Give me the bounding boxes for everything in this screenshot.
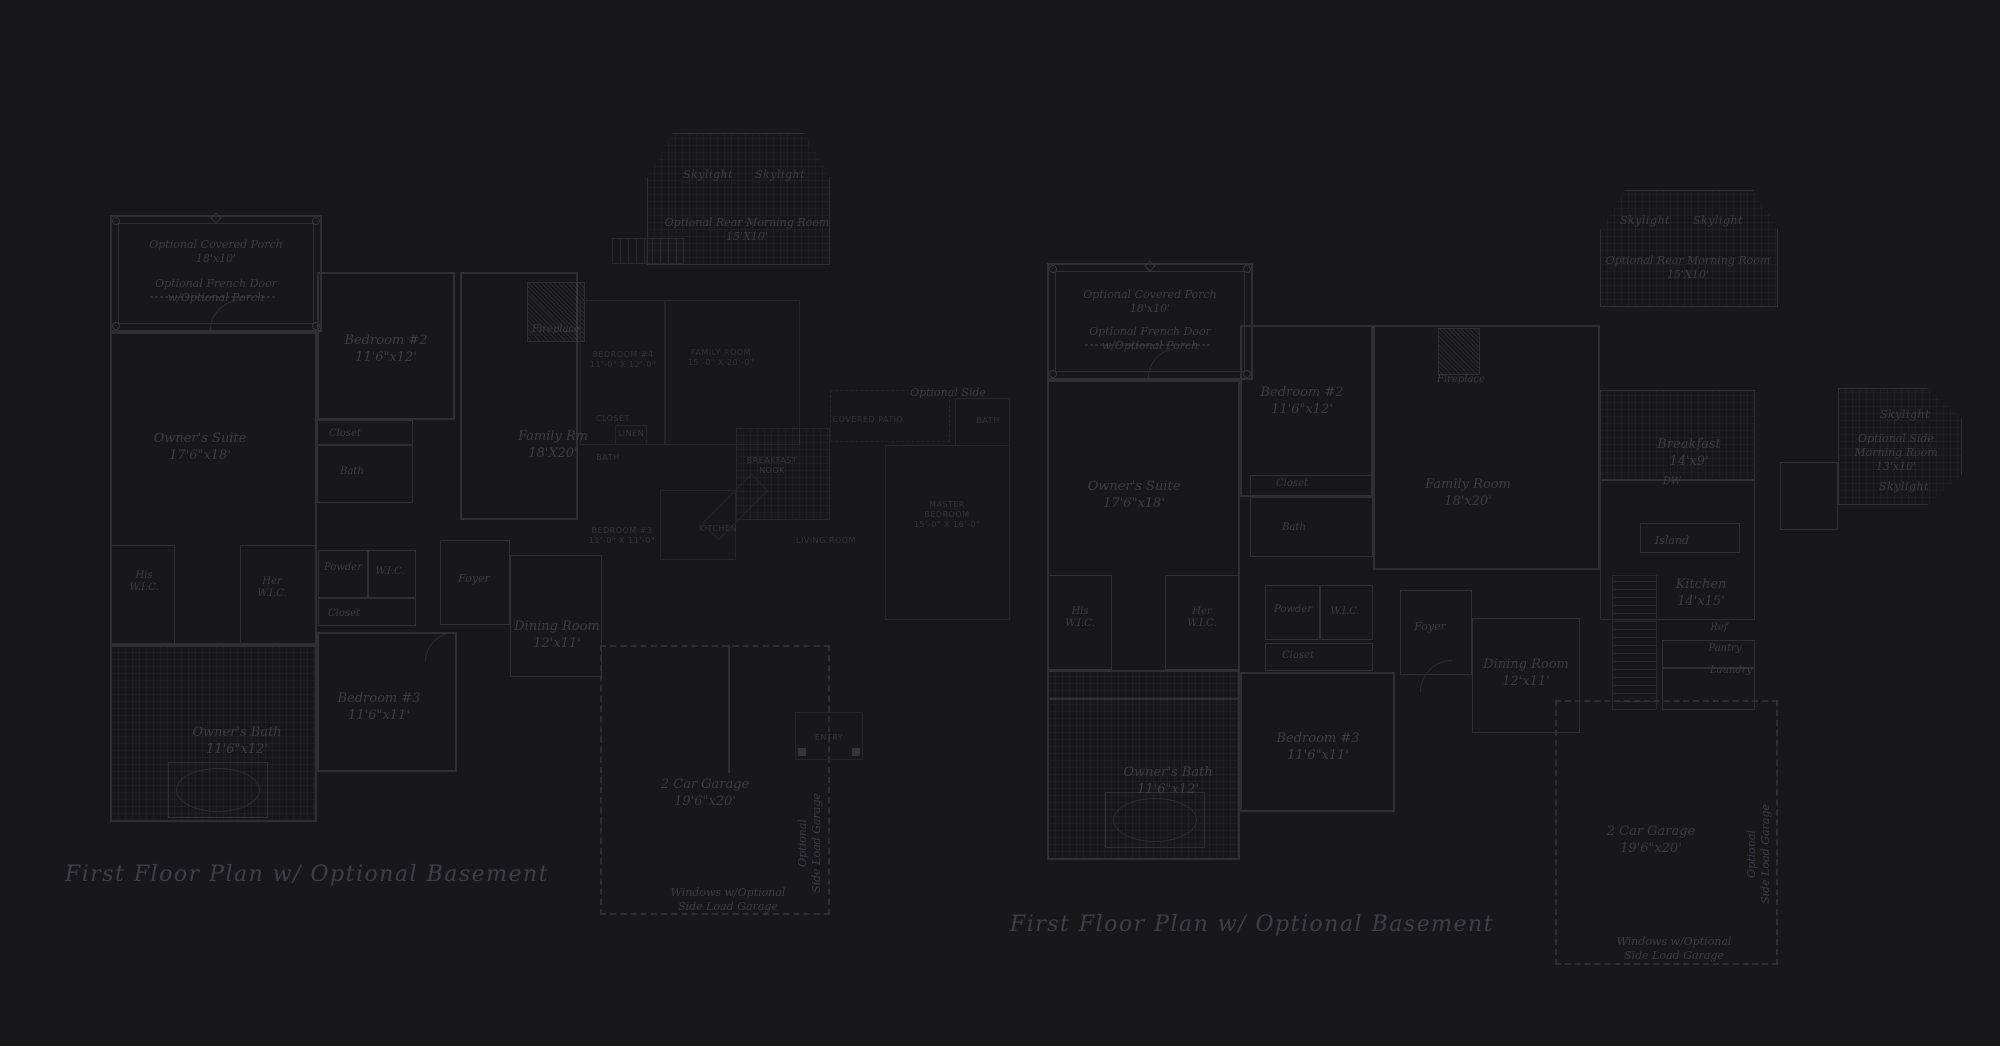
- right-plan-optional-french-door-label-line: w/Optional Porch: [1089, 339, 1211, 353]
- entry-post: [798, 748, 806, 756]
- right-plan-skylight-label-1: Skylight: [1620, 214, 1670, 227]
- floor-plan-canvas: Optional Covered Porch18'x10'Optional Fr…: [0, 0, 2000, 1046]
- morning-room-connector: [1780, 462, 1838, 530]
- left-plan-caps-bath-label-line: BATH: [596, 453, 619, 463]
- left-plan-bedroom2-label: Bedroom #211'6"x12': [344, 332, 427, 366]
- left-plan-caps-entry-label-line: ENTRY: [815, 733, 843, 743]
- left-plan-her-wic-label-line: W.I.C.: [257, 588, 286, 600]
- left-plan-bedroom2-label-line: Bedroom #2: [344, 332, 427, 349]
- left-plan-caps-bedroom3-label-line: 11'-0" X 11'-0": [589, 536, 655, 546]
- left-plan-his-wic-label-line: His: [129, 570, 158, 582]
- tub-basin: [1113, 798, 1197, 842]
- right-plan-owners-suite-label-line: Owner's Suite: [1088, 478, 1181, 495]
- right-plan-ref-label-line: Ref: [1710, 622, 1727, 634]
- left-plan-garage-label: 2 Car Garage19'6"x20': [661, 776, 750, 810]
- porch-post: [1243, 265, 1251, 273]
- left-plan-caps-master-bedroom-label: MASTERBEDROOM15'-0" X 16'-0": [914, 500, 980, 530]
- right-plan-optional-covered-porch-label-line: Optional Covered Porch: [1083, 288, 1216, 302]
- dining-room: [510, 555, 602, 677]
- right-plan-bedroom2-label-line: Bedroom #2: [1260, 384, 1343, 401]
- right-plan-bedroom2-label: Bedroom #211'6"x12': [1260, 384, 1343, 418]
- left-plan-family-rm-label: Family Rm18'X20': [518, 428, 588, 462]
- left-plan-owners-suite-label: Owner's Suite17'6"x18': [154, 430, 247, 464]
- right-plan-side-load-garage-vertical-label-line: Optional: [1745, 804, 1759, 904]
- right-plan-closet2-label: Closet: [1282, 650, 1314, 662]
- left-plan-caps-entry-label: ENTRY: [815, 733, 843, 743]
- right-plan-optional-french-door-label: Optional French Doorw/Optional Porch: [1089, 325, 1211, 353]
- right-plan-garage-label-line: 19'6"x20': [1607, 840, 1696, 857]
- left-plan-caps-closet-label: CLOSET: [596, 414, 630, 424]
- right-plan-fireplace-label: Fireplace: [1437, 374, 1485, 386]
- porch-post: [112, 322, 120, 330]
- right-plan-island-label: Island: [1655, 534, 1689, 548]
- right-plan-owners-suite-label: Owner's Suite17'6"x18': [1088, 478, 1181, 512]
- left-plan-rear-morning-room-label-line: 15'X10': [665, 230, 830, 244]
- right-plan-breakfast-label-line: Breakfast: [1657, 436, 1721, 453]
- right-plan-dining-room-label-line: Dining Room: [1483, 656, 1569, 673]
- left-plan-her-wic-label-line: Her: [257, 576, 286, 588]
- left-plan-caps-living-room-label: LIVING ROOM: [796, 536, 856, 546]
- left-plan-bedroom2-label-line: 11'6"x12': [344, 349, 427, 366]
- right-plan-owners-suite-label-line: 17'6"x18': [1088, 495, 1181, 512]
- left-plan-optional-french-door-label-line: w/Optional Porch: [155, 291, 277, 305]
- right-plan-owners-bath-label: Owner's Bath11'6"x12': [1123, 764, 1212, 798]
- right-plan-family-room-label-line: 18'x20': [1425, 493, 1511, 510]
- closet-room: [1250, 475, 1373, 497]
- right-plan-garage-label-line: 2 Car Garage: [1607, 823, 1696, 840]
- left-plan-side-load-garage-vertical-label: OptionalSide Load Garage: [796, 793, 824, 893]
- bath-room: [317, 445, 413, 503]
- left-plan-garage-label-line: 2 Car Garage: [661, 776, 750, 793]
- left-plan-caps-family-room-label-line: FAMILY ROOM: [688, 348, 754, 358]
- right-plan-closet2-label-line: Closet: [1282, 650, 1314, 662]
- left-plan-owners-suite-label-line: 17'6"x18': [154, 447, 247, 464]
- left-plan-family-rm-label-line: 18'X20': [518, 445, 588, 462]
- right-plan-rear-morning-room-label-line: Optional Rear Morning Room: [1606, 254, 1771, 268]
- right-plan-optional-covered-porch-label-line: 18'x10': [1083, 302, 1216, 316]
- left-plan-windows-optional-label-line: Side Load Garage: [671, 900, 786, 914]
- left-plan-rear-morning-room-label-line: Optional Rear Morning Room: [665, 216, 830, 230]
- left-plan-caps-breakfast-nook-label-line: NOOK: [747, 466, 798, 476]
- left-plan-closet2-label: Closet: [328, 608, 360, 620]
- right-plan-pantry-label: Pantry: [1708, 643, 1741, 655]
- right-plan-owners-bath-label-line: 11'6"x12': [1123, 781, 1212, 798]
- left-plan-owners-bath-label-line: 11'6"x12': [192, 741, 281, 758]
- rear-morning-room: [1600, 190, 1778, 307]
- left-plan-skylight-label-1-line: Skylight: [683, 168, 733, 181]
- right-plan-foyer-label: Foyer: [1414, 620, 1446, 634]
- right-plan-side-morning-room-label-line: Morning Room: [1854, 446, 1937, 460]
- right-plan-his-wic-label-line: His: [1065, 606, 1094, 618]
- left-plan-caps-living-room-label-line: LIVING ROOM: [796, 536, 856, 546]
- right-plan-foyer-label-line: Foyer: [1414, 620, 1446, 634]
- stairs: [1612, 575, 1657, 710]
- right-plan-side-skylight-label-2-line: Skylight: [1879, 480, 1929, 493]
- left-plan-caps-linen-label-line: LINEN: [618, 429, 644, 439]
- left-plan-closet2-label-line: Closet: [328, 608, 360, 620]
- right-plan-owners-bath-label-line: Owner's Bath: [1123, 764, 1212, 781]
- left-plan-owners-suite-label-line: Owner's Suite: [154, 430, 247, 447]
- right-plan-skylight-label-2-line: Skylight: [1693, 214, 1743, 227]
- left-plan-side-load-garage-vertical-label-line: Optional: [796, 793, 810, 893]
- right-plan-wic-label: W.I.C.: [1330, 606, 1359, 618]
- right-plan-kitchen-label: Kitchen14'x15': [1676, 576, 1727, 610]
- garage-step-wall: [728, 645, 730, 773]
- left-plan-bath-label-line: Bath: [340, 466, 364, 478]
- right-plan-her-wic-label-line: Her: [1187, 606, 1216, 618]
- right-plan-dining-room-label: Dining Room12'x11': [1483, 656, 1569, 690]
- right-plan-bedroom3-label-line: Bedroom #3: [1276, 730, 1359, 747]
- right-plan-dw-label-line: DW: [1663, 476, 1681, 488]
- right-plan-caption: First Floor Plan w/ Optional Basement: [1010, 912, 1494, 938]
- right-plan-ref-label: Ref: [1710, 622, 1727, 634]
- right-plan-family-room-label: Family Room18'x20': [1425, 476, 1511, 510]
- right-plan-rear-morning-room-label-line: 15'X10': [1606, 268, 1771, 282]
- porch-post: [112, 217, 120, 225]
- left-plan-optional-covered-porch-label-line: Optional Covered Porch: [149, 238, 282, 252]
- left-plan-skylight-label-2: Skylight: [755, 168, 805, 181]
- left-plan-bedroom3-label-line: 11'6"x11': [337, 707, 420, 724]
- left-plan-caps-master-bedroom-label-line: MASTER: [914, 500, 980, 510]
- porch-post: [1049, 265, 1057, 273]
- left-plan-caps-master-bedroom-label-line: BEDROOM: [914, 510, 980, 520]
- right-plan-bedroom2-label-line: 11'6"x12': [1260, 401, 1343, 418]
- right-plan-island-label-line: Island: [1655, 534, 1689, 548]
- left-plan-caps-bath2-label: BATH: [976, 416, 999, 426]
- left-plan-bedroom3-label-line: Bedroom #3: [337, 690, 420, 707]
- left-plan-optional-covered-porch-label-line: 18'x10': [149, 252, 282, 266]
- left-plan-optional-side-label: Optional Side: [910, 386, 986, 400]
- left-plan-caps-covered-patio-label-line: COVERED PATIO: [833, 415, 904, 425]
- right-plan-bedroom3-label: Bedroom #311'6"x11': [1276, 730, 1359, 764]
- right-plan-breakfast-label: Breakfast14'x9': [1657, 436, 1721, 470]
- right-plan-bedroom3-label-line: 11'6"x11': [1276, 747, 1359, 764]
- left-plan-caps-linen-label: LINEN: [618, 429, 644, 439]
- left-plan-caps-breakfast-nook-label-line: BREAKFAST: [747, 456, 798, 466]
- left-plan-caps-family-room-label: FAMILY ROOM15'-0" X 20'-0": [688, 348, 754, 368]
- left-plan-caps-covered-patio-label: COVERED PATIO: [833, 415, 904, 425]
- left-plan-owners-bath-label: Owner's Bath11'6"x12': [192, 724, 281, 758]
- left-plan-skylight-label-1: Skylight: [683, 168, 733, 181]
- right-plan-her-wic-label-line: W.I.C.: [1187, 618, 1216, 630]
- left-plan-caps-bedroom3-label-line: BEDROOM #3: [589, 526, 655, 536]
- his-wic-room: [110, 545, 175, 645]
- left-plan-optional-side-label-line: Optional Side: [910, 386, 986, 400]
- left-plan-caps-bedroom4-label-line: BEDROOM #4: [590, 350, 656, 360]
- right-plan-laundry-label-line: Laundry: [1710, 665, 1752, 677]
- right-plan-laundry-label: Laundry: [1710, 665, 1752, 677]
- right-plan-pantry-label-line: Pantry: [1708, 643, 1741, 655]
- right-plan-kitchen-label-line: Kitchen: [1676, 576, 1727, 593]
- right-plan-side-morning-room-label-line: 13'x10': [1854, 460, 1937, 474]
- right-plan-powder-label-line: Powder: [1274, 604, 1312, 616]
- right-plan-powder-label: Powder: [1274, 604, 1312, 616]
- porch-post: [1049, 370, 1057, 378]
- right-plan-dining-room-label-line: 12'x11': [1483, 673, 1569, 690]
- right-plan-skylight-label-2: Skylight: [1693, 214, 1743, 227]
- right-plan-rear-morning-room-label: Optional Rear Morning Room15'X10': [1606, 254, 1771, 282]
- left-plan-foyer-label-line: Foyer: [458, 572, 490, 586]
- left-plan-wic-label-line: W.I.C.: [375, 566, 404, 578]
- left-plan-windows-optional-label: Windows w/OptionalSide Load Garage: [671, 886, 786, 914]
- left-plan-optional-french-door-label-line: Optional French Door: [155, 277, 277, 291]
- left-plan-caps-bath-label: BATH: [596, 453, 619, 463]
- porch-post: [312, 217, 320, 225]
- left-plan-caps-breakfast-nook-label: BREAKFASTNOOK: [747, 456, 798, 476]
- left-plan-garage-label-line: 19'6"x20': [661, 793, 750, 810]
- left-plan-fireplace-label-line: Fireplace: [532, 324, 580, 336]
- left-plan-rear-morning-room-label: Optional Rear Morning Room15'X10': [665, 216, 830, 244]
- left-plan-his-wic-label: HisW.I.C.: [129, 570, 158, 594]
- right-plan-family-room-label-line: Family Room: [1425, 476, 1511, 493]
- left-plan-family-rm-label-line: Family Rm: [518, 428, 588, 445]
- left-plan-her-wic-label: HerW.I.C.: [257, 576, 286, 600]
- left-plan-skylight-label-2-line: Skylight: [755, 168, 805, 181]
- right-plan-closet-label-line: Closet: [1276, 478, 1308, 490]
- left-plan-caps-closet-label-line: CLOSET: [596, 414, 630, 424]
- right-plan-his-wic-label: HisW.I.C.: [1065, 606, 1094, 630]
- bath-room: [1250, 497, 1373, 557]
- right-plan-closet-label: Closet: [1276, 478, 1308, 490]
- left-plan-wic-label: W.I.C.: [375, 566, 404, 578]
- right-plan-fireplace-label-line: Fireplace: [1437, 374, 1485, 386]
- right-plan-side-skylight-label-2: Skylight: [1879, 480, 1929, 493]
- left-plan-caption: First Floor Plan w/ Optional Basement: [65, 862, 549, 888]
- left-plan-optional-french-door-label: Optional French Doorw/Optional Porch: [155, 277, 277, 305]
- left-plan-dining-room-label-line: 12'x11': [514, 635, 600, 652]
- left-plan-caps-bedroom4-label: BEDROOM #411'-0" X 12'-0": [590, 350, 656, 370]
- right-plan-bath-label: Bath: [1282, 522, 1306, 534]
- left-plan-fireplace-label: Fireplace: [532, 324, 580, 336]
- right-plan-side-skylight-label-1-line: Skylight: [1880, 408, 1930, 421]
- powder-room: [318, 550, 368, 598]
- left-plan-powder-label: Powder: [324, 562, 362, 574]
- right-plan-windows-optional-label-line: Windows w/Optional: [1617, 935, 1732, 949]
- left-plan-closet-label-line: Closet: [329, 428, 361, 440]
- right-plan-side-morning-room-label-line: Optional Side: [1854, 432, 1937, 446]
- left-plan-dining-room-label-line: Dining Room: [514, 618, 600, 635]
- right-plan-side-skylight-label-1: Skylight: [1880, 408, 1930, 421]
- left-plan-his-wic-label-line: W.I.C.: [129, 582, 158, 594]
- right-plan-bath-label-line: Bath: [1282, 522, 1306, 534]
- caps-master-bedroom-room: [885, 445, 1010, 620]
- left-plan-caps-bath2-label-line: BATH: [976, 416, 999, 426]
- right-plan-kitchen-label-line: 14'x15': [1676, 593, 1727, 610]
- right-plan-side-load-garage-vertical-label: OptionalSide Load Garage: [1745, 804, 1773, 904]
- tub-basin: [176, 768, 260, 812]
- right-plan-optional-covered-porch-label: Optional Covered Porch18'x10': [1083, 288, 1216, 316]
- left-plan-windows-optional-label-line: Windows w/Optional: [671, 886, 786, 900]
- left-plan-side-load-garage-vertical-label-line: Side Load Garage: [810, 793, 824, 893]
- right-plan-his-wic-label-line: W.I.C.: [1065, 618, 1094, 630]
- left-plan-caps-bedroom3-label: BEDROOM #311'-0" X 11'-0": [589, 526, 655, 546]
- right-plan-windows-optional-label: Windows w/OptionalSide Load Garage: [1617, 935, 1732, 963]
- left-plan-dining-room-label: Dining Room12'x11': [514, 618, 600, 652]
- left-plan-foyer-label: Foyer: [458, 572, 490, 586]
- porch-inner-outline: [1055, 271, 1245, 372]
- right-plan-wic-label-line: W.I.C.: [1330, 606, 1359, 618]
- right-plan-side-load-garage-vertical-label-line: Side Load Garage: [1759, 804, 1773, 904]
- left-plan-optional-covered-porch-label: Optional Covered Porch18'x10': [149, 238, 282, 266]
- left-plan-bedroom3-label: Bedroom #311'6"x11': [337, 690, 420, 724]
- right-plan-skylight-label-1-line: Skylight: [1620, 214, 1670, 227]
- left-plan-caps-kitchen-label: KITCHEN: [699, 524, 737, 534]
- right-plan-her-wic-label: HerW.I.C.: [1187, 606, 1216, 630]
- right-plan-breakfast-label-line: 14'x9': [1657, 453, 1721, 470]
- entry-post: [852, 748, 860, 756]
- right-plan-dw-label: DW: [1663, 476, 1681, 488]
- right-plan-side-morning-room-label: Optional SideMorning Room13'x10': [1854, 432, 1937, 474]
- fireplace: [1438, 328, 1480, 375]
- right-plan-windows-optional-label-line: Side Load Garage: [1617, 949, 1732, 963]
- left-plan-bath-label: Bath: [340, 466, 364, 478]
- left-plan-caps-master-bedroom-label-line: 15'-0" X 16'-0": [914, 520, 980, 530]
- left-plan-caps-bedroom4-label-line: 11'-0" X 12'-0": [590, 360, 656, 370]
- family-room: [1373, 325, 1600, 570]
- left-plan-caps-family-room-label-line: 15'-0" X 20'-0": [688, 358, 754, 368]
- caps-family-room: [665, 300, 800, 445]
- left-plan-owners-bath-label-line: Owner's Bath: [192, 724, 281, 741]
- right-plan-garage-label: 2 Car Garage19'6"x20': [1607, 823, 1696, 857]
- left-plan-caps-kitchen-label-line: KITCHEN: [699, 524, 737, 534]
- left-plan-closet-label: Closet: [329, 428, 361, 440]
- right-plan-optional-french-door-label-line: Optional French Door: [1089, 325, 1211, 339]
- left-plan-powder-label-line: Powder: [324, 562, 362, 574]
